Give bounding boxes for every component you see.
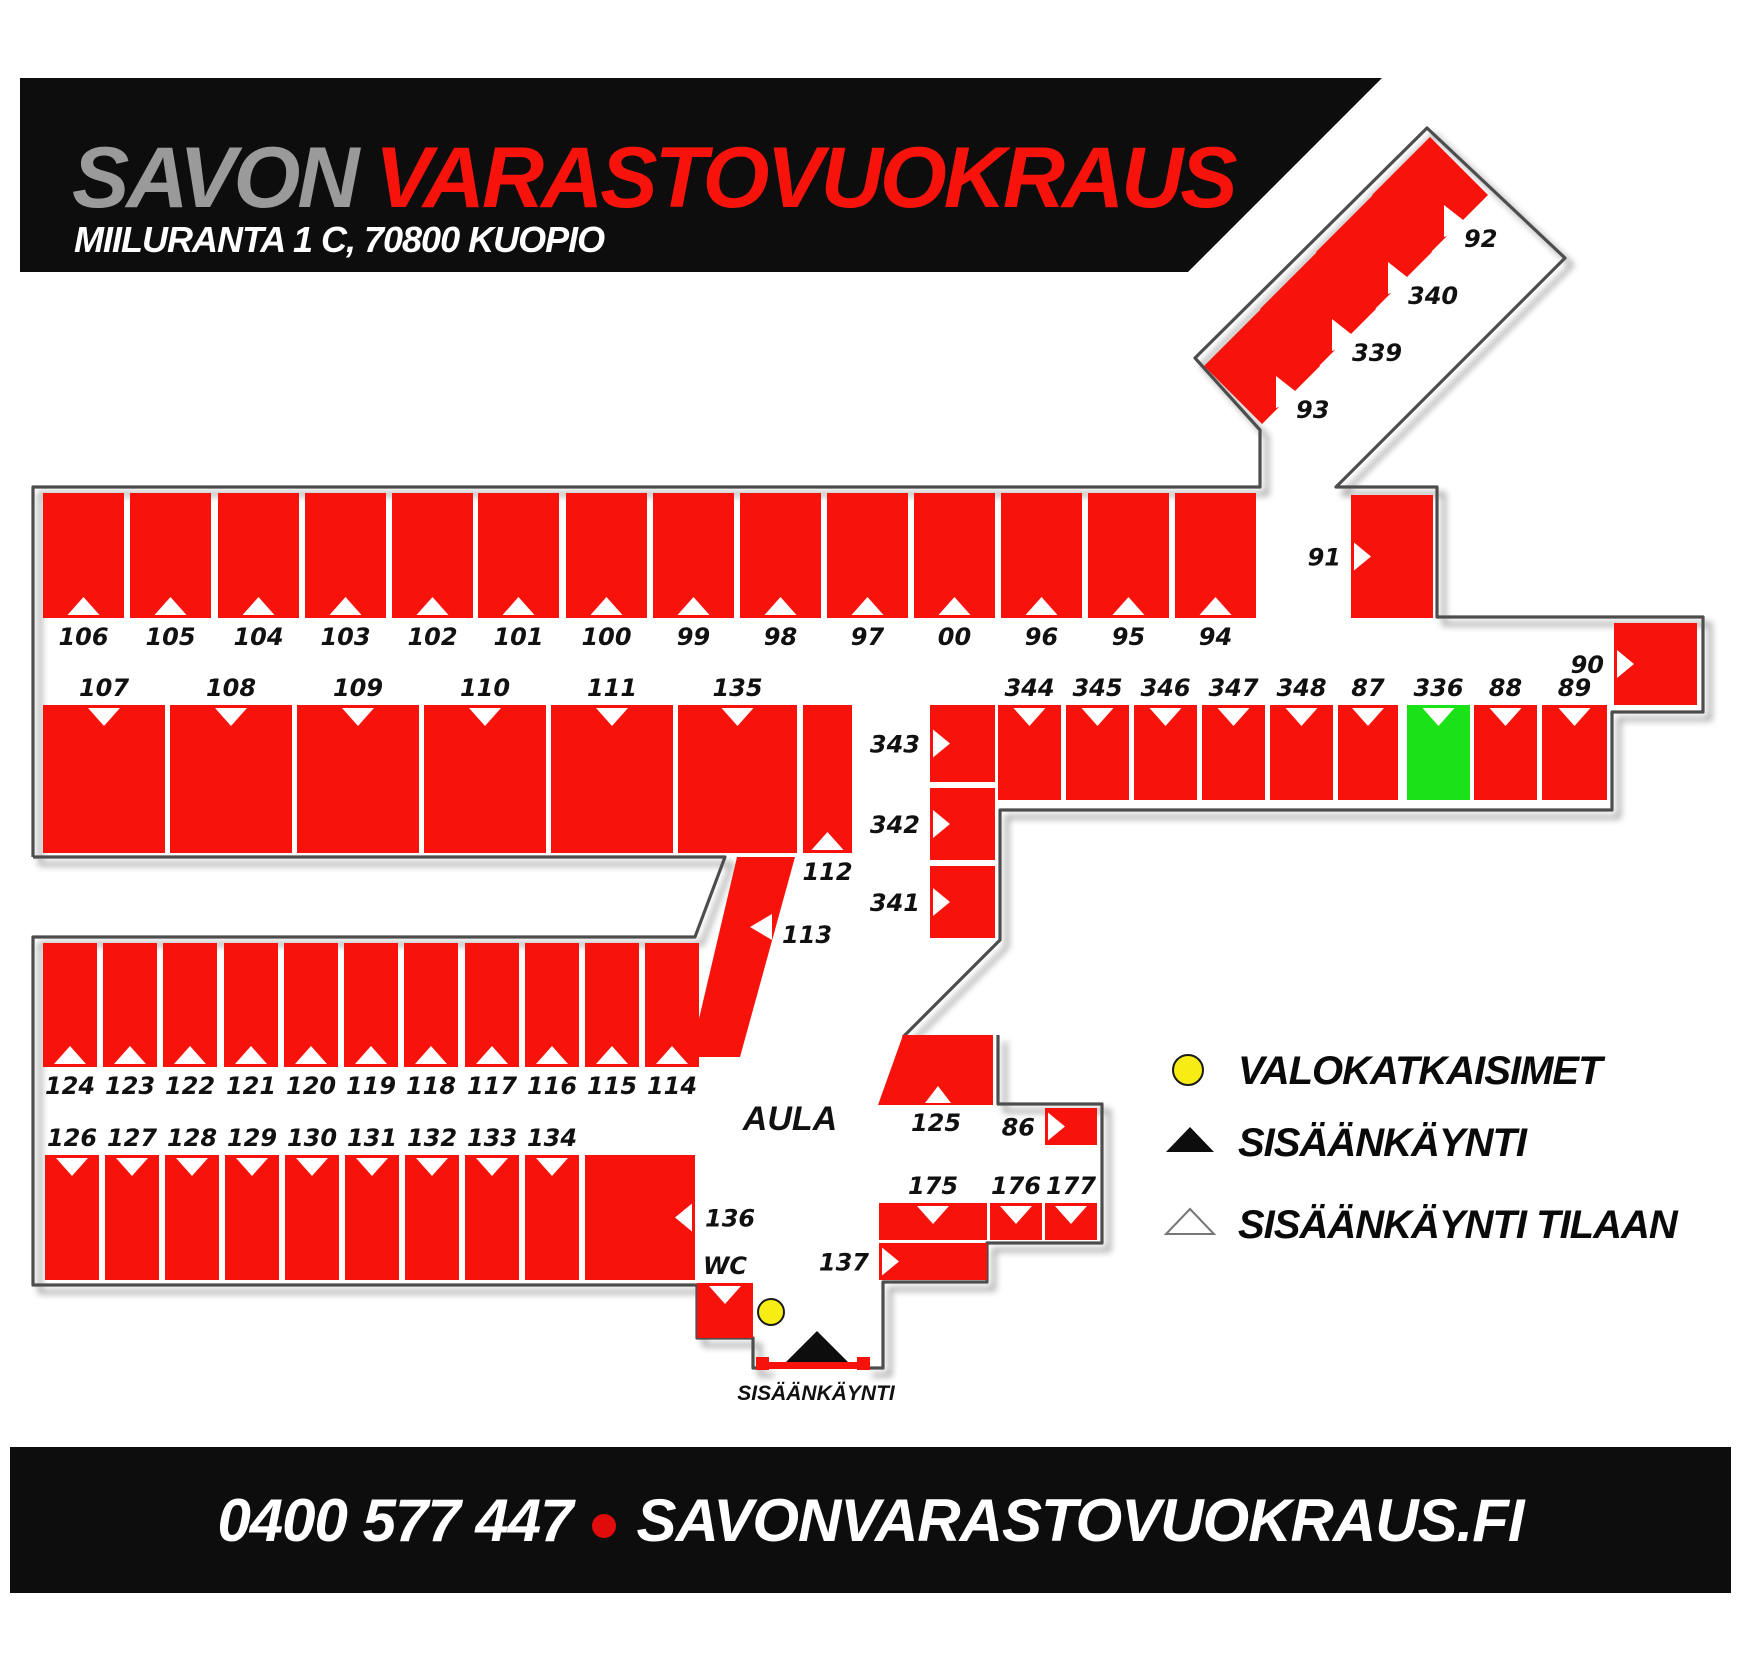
- unit-113[interactable]: [690, 857, 795, 1057]
- unit-93-label: 93: [1296, 396, 1329, 424]
- unit-94-label: 94: [1199, 623, 1232, 651]
- unit-131-label: 131: [347, 1124, 397, 1152]
- unit-340-label: 340: [1408, 282, 1458, 310]
- unit-105-label: 105: [145, 623, 195, 651]
- aula-label: AULA: [742, 1100, 837, 1138]
- footer-dot-icon: [592, 1514, 616, 1538]
- unit-00-label: 00: [938, 623, 971, 651]
- floor-plan-page: SAVON VARASTOVUOKRAUS MIILURANTA 1 C, 70…: [0, 0, 1741, 1662]
- unit-339-label: 339: [1352, 339, 1402, 367]
- light-switch-icon: [1173, 1055, 1203, 1085]
- unit-91-label: 91: [1308, 544, 1341, 572]
- unit-343-label: 343: [870, 731, 920, 759]
- unit-97-label: 97: [851, 623, 885, 651]
- unit-176-label: 176: [991, 1172, 1041, 1200]
- legend: VALOKATKAISIMET SISÄÄNKÄYNTI SISÄÄNKÄYNT…: [1166, 1049, 1679, 1247]
- unit-130-label: 130: [287, 1124, 337, 1152]
- unit-101-label: 101: [493, 623, 543, 651]
- title-secondary: VARASTOVUOKRAUS: [375, 130, 1237, 226]
- unit-109[interactable]: [297, 705, 419, 853]
- unit-wc-label: WC: [703, 1252, 747, 1280]
- unit-121-label: 121: [226, 1072, 276, 1100]
- unit-127-label: 127: [107, 1124, 157, 1152]
- unit-108-label: 108: [206, 674, 256, 702]
- unit-342-label: 342: [870, 811, 920, 839]
- unit-112-label: 112: [802, 858, 852, 886]
- unit-341-label: 341: [870, 889, 920, 917]
- unit-123-label: 123: [105, 1072, 155, 1100]
- unit-346-label: 346: [1140, 674, 1190, 702]
- header-banner: SAVON VARASTOVUOKRAUS MIILURANTA 1 C, 70…: [20, 78, 1382, 272]
- unit-88-label: 88: [1489, 674, 1522, 702]
- unit-106-label: 106: [58, 623, 108, 651]
- unit-90-label: 90: [1571, 651, 1604, 679]
- unit-137-label: 137: [819, 1249, 869, 1277]
- unit-344-label: 344: [1004, 674, 1054, 702]
- unit-348-label: 348: [1276, 674, 1326, 702]
- legend-valokatkaisimet-label: VALOKATKAISIMET: [1238, 1049, 1606, 1093]
- unit-175-label: 175: [908, 1172, 958, 1200]
- main-entrance-icon: [783, 1331, 851, 1365]
- wall-outline-left-halls: [33, 857, 767, 1368]
- unit-99-label: 99: [677, 623, 710, 651]
- title-primary: SAVON: [72, 130, 361, 226]
- unit-87-label: 87: [1351, 674, 1385, 702]
- unit-113-label: 113: [782, 921, 832, 949]
- unit-109-label: 109: [333, 674, 383, 702]
- unit-117-label: 117: [467, 1072, 517, 1100]
- legend-sisaankaynti-label: SISÄÄNKÄYNTI: [1238, 1121, 1528, 1165]
- footer-bar: 0400 577 447 SAVONVARASTOVUOKRAUS.FI: [10, 1447, 1731, 1593]
- entrance-outline-icon: [1166, 1209, 1214, 1234]
- unit-98-label: 98: [764, 623, 797, 651]
- light-switch-marker: [758, 1299, 784, 1325]
- entrance-filled-icon: [1166, 1127, 1214, 1152]
- unit-120-label: 120: [286, 1072, 336, 1100]
- unit-119-label: 119: [346, 1072, 396, 1100]
- unit-122-label: 122: [165, 1072, 215, 1100]
- unit-110-label: 110: [460, 674, 510, 702]
- unit-116-label: 116: [527, 1072, 577, 1100]
- legend-sisaankaynti-tilaan-label: SISÄÄNKÄYNTI TILAAN: [1238, 1203, 1679, 1247]
- unit-111-label: 111: [587, 674, 637, 702]
- unit-345-label: 345: [1072, 674, 1122, 702]
- footer-website[interactable]: SAVONVARASTOVUOKRAUS.FI: [636, 1486, 1523, 1555]
- unit-107[interactable]: [43, 705, 165, 853]
- unit-124-label: 124: [45, 1072, 95, 1100]
- unit-103-label: 103: [320, 623, 370, 651]
- unit-135-label: 135: [712, 674, 762, 702]
- floor-plan-map: SAVON VARASTOVUOKRAUS MIILURANTA 1 C, 70…: [0, 0, 1741, 1662]
- unit-135[interactable]: [678, 705, 797, 853]
- address-line: MIILURANTA 1 C, 70800 KUOPIO: [74, 219, 605, 260]
- unit-96-label: 96: [1025, 623, 1058, 651]
- unit-102-label: 102: [407, 623, 457, 651]
- unit-86-label: 86: [1002, 1114, 1035, 1142]
- unit-107-label: 107: [79, 674, 129, 702]
- unit-111[interactable]: [551, 705, 673, 853]
- unit-136-label: 136: [705, 1205, 755, 1233]
- unit-115-label: 115: [587, 1072, 637, 1100]
- unit-126-label: 126: [47, 1124, 97, 1152]
- unit-92-label: 92: [1464, 225, 1497, 253]
- unit-347-label: 347: [1208, 674, 1258, 702]
- unit-108[interactable]: [170, 705, 292, 853]
- unit-112[interactable]: [803, 705, 852, 853]
- page-title: SAVON VARASTOVUOKRAUS: [72, 130, 1237, 226]
- unit-110[interactable]: [424, 705, 546, 853]
- unit-336-label: 336: [1413, 674, 1463, 702]
- unit-128-label: 128: [167, 1124, 217, 1152]
- unit-133-label: 133: [467, 1124, 517, 1152]
- footer-phone: 0400 577 447: [217, 1486, 572, 1555]
- unit-100-label: 100: [581, 623, 631, 651]
- unit-114-label: 114: [647, 1072, 697, 1100]
- unit-132-label: 132: [407, 1124, 457, 1152]
- unit-177-label: 177: [1046, 1172, 1096, 1200]
- entrance-label: SISÄÄNKÄYNTI: [737, 1382, 896, 1405]
- unit-125-label: 125: [911, 1109, 961, 1137]
- map-symbols: AULA SISÄÄNKÄYNTI: [737, 1100, 896, 1405]
- unit-129-label: 129: [227, 1124, 277, 1152]
- unit-118-label: 118: [406, 1072, 456, 1100]
- unit-95-label: 95: [1112, 623, 1145, 651]
- unit-134-label: 134: [527, 1124, 577, 1152]
- unit-104-label: 104: [233, 623, 283, 651]
